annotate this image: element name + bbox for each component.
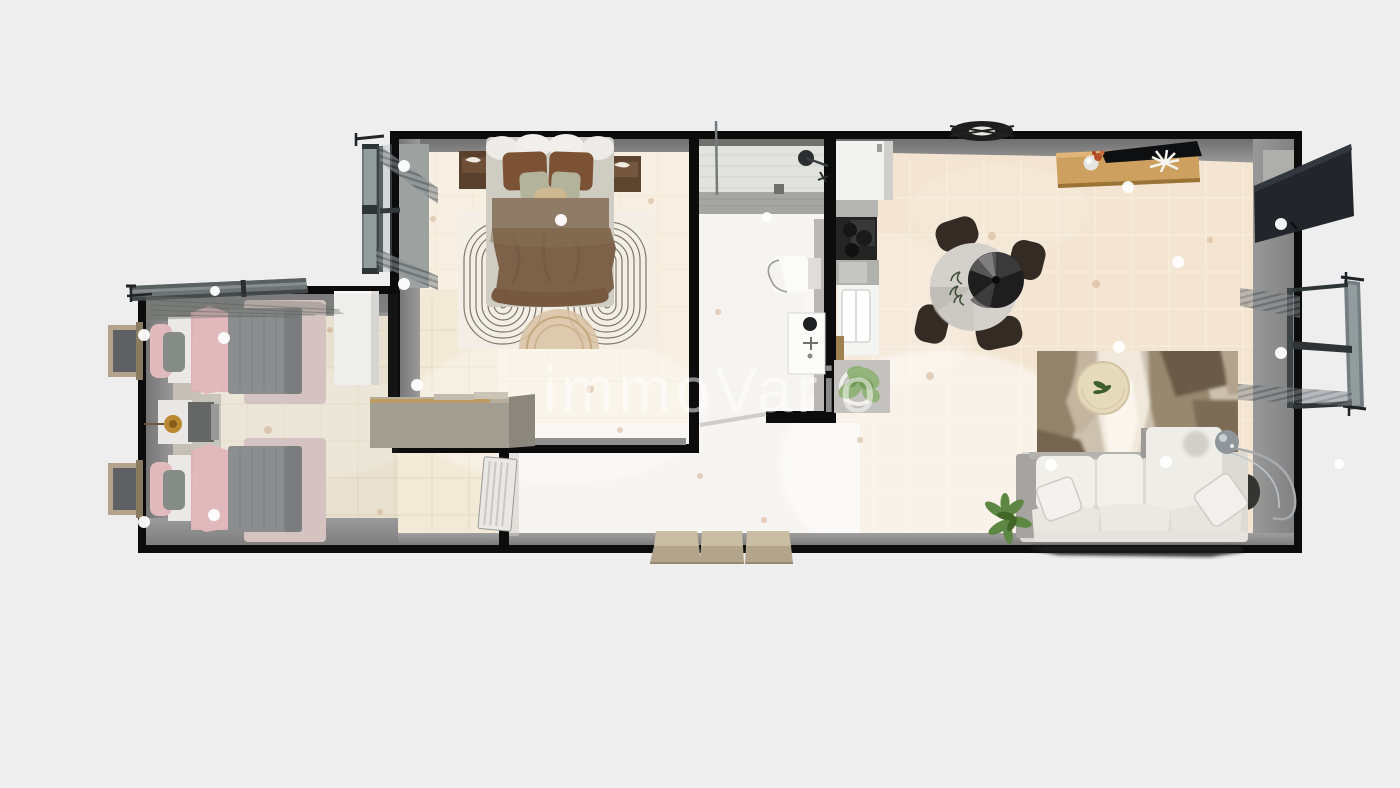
svg-text:immoVario: immoVario xyxy=(542,354,879,426)
